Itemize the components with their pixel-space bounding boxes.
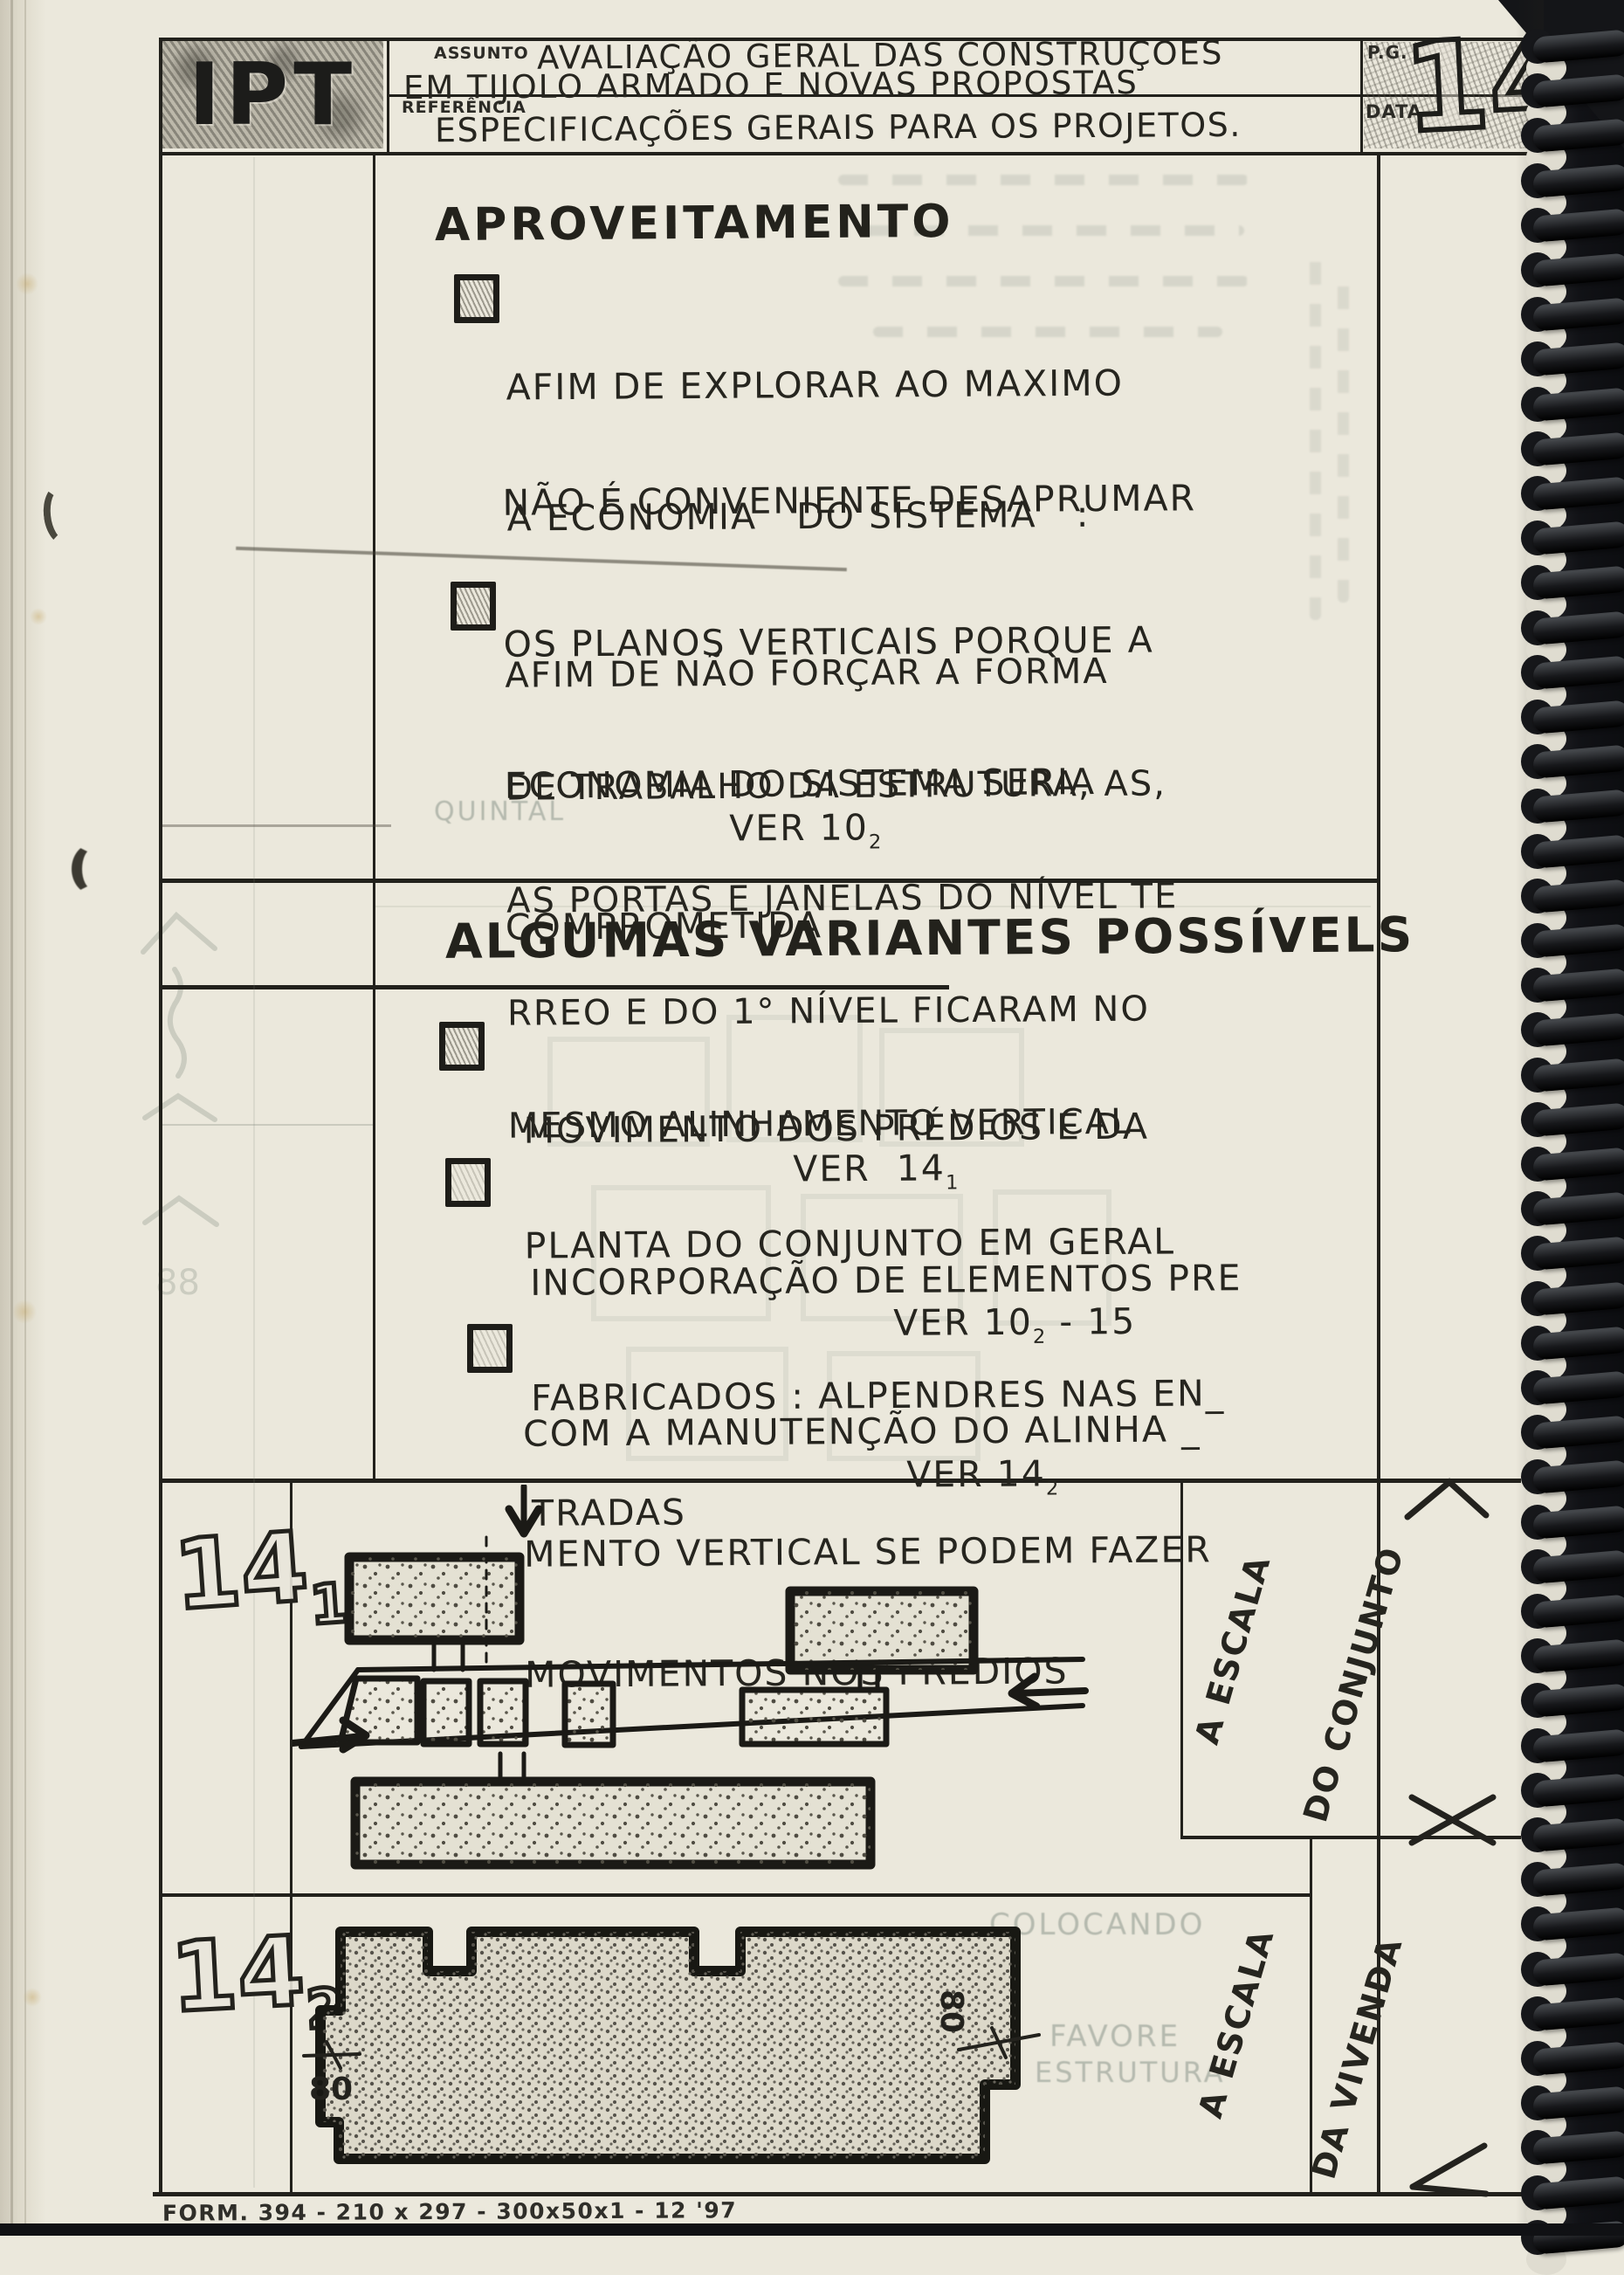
faint-grid-line [162,824,391,827]
bracket-chevron-bottom [1413,2146,1486,2194]
scan-bottom-edge [0,2223,1624,2236]
figure1-site-plan [292,1485,1176,1891]
bullet2-line-1: AFIM DE NÃO FORÇAR A FORMA [505,652,1176,694]
ghost-writing-vertical [1338,271,1349,603]
section2-title: ALGUMAS VARIANTES POSSÍVELS [445,907,1415,969]
dimension-left: 80 [309,2072,353,2107]
ghost-writing-vertical [1310,253,1321,620]
reference-text: VER 10 [729,806,869,849]
faint-grid-line [253,157,255,2188]
section1-title: APROVEITAMENTO [435,196,954,252]
vivenda-line-1: A ESCALA [1181,1898,1290,2149]
bullet-checkbox [445,1158,491,1207]
hole-punch [72,844,114,894]
bullet-checkbox [439,1022,485,1071]
variant3-line-1: COM A MANUTENÇÃO DO ALINHA _ [523,1409,1211,1453]
ipt-logo-cell: IPT [162,41,383,148]
age-spot [12,1300,37,1324]
figure2-number: 14 [168,1915,307,2034]
arrow-down-icon [509,1486,539,1534]
reference-subscript: 2 [869,831,883,853]
referencia-text: ESPECIFICAÇÕES GERAIS PARA OS PROJETOS. [435,106,1242,149]
frame-left [159,38,162,2196]
figure1-number: 14 [170,1511,312,1631]
bullet-checkbox [454,274,499,323]
bracket-x-mark [1412,1797,1493,1843]
variant1-reference: VER 141 [767,1105,960,1196]
dimension-right: 80 [933,1989,969,2033]
bullet2-reference: VER 102 [703,764,883,855]
age-spot [16,272,38,295]
faint-grid-line [162,1124,373,1126]
bullet-checkbox [467,1324,513,1373]
note-line-1: NÃO É CONVENIENTE DESAPRUMAR [502,474,1196,527]
ghost-margin-marks: 88 [131,900,279,1319]
page-stack-edge [0,0,54,2236]
body-column-divider [373,152,375,1481]
ipt-logo: IPT [189,45,357,145]
bullet2-line-4: RREO E DO 1° NÍVEL FICARAM NO [507,990,1179,1032]
stack-line [10,0,13,2236]
frame-bottom [153,2192,1539,2196]
form-footer: FORM. 394 - 210 x 297 - 300x50x1 - 12 '9… [162,2197,737,2225]
ghost-writing [838,175,1249,185]
arrow-left-icon [1012,1677,1085,1706]
logo-cell-border [387,38,389,155]
assunto-label: ASSUNTO [434,44,529,63]
age-spot [30,608,47,625]
stack-line [24,0,26,2236]
age-spot [23,1988,42,2007]
conjunto-line-1: A ESCALA [1173,1506,1292,1792]
pg-cell-border [1360,38,1363,155]
header-bottom [159,152,1545,155]
vivenda-line-2: DA VIVENDA [1303,1932,1412,2183]
bullet-checkbox [451,582,496,631]
bracket-chevron-top [1407,1482,1486,1517]
